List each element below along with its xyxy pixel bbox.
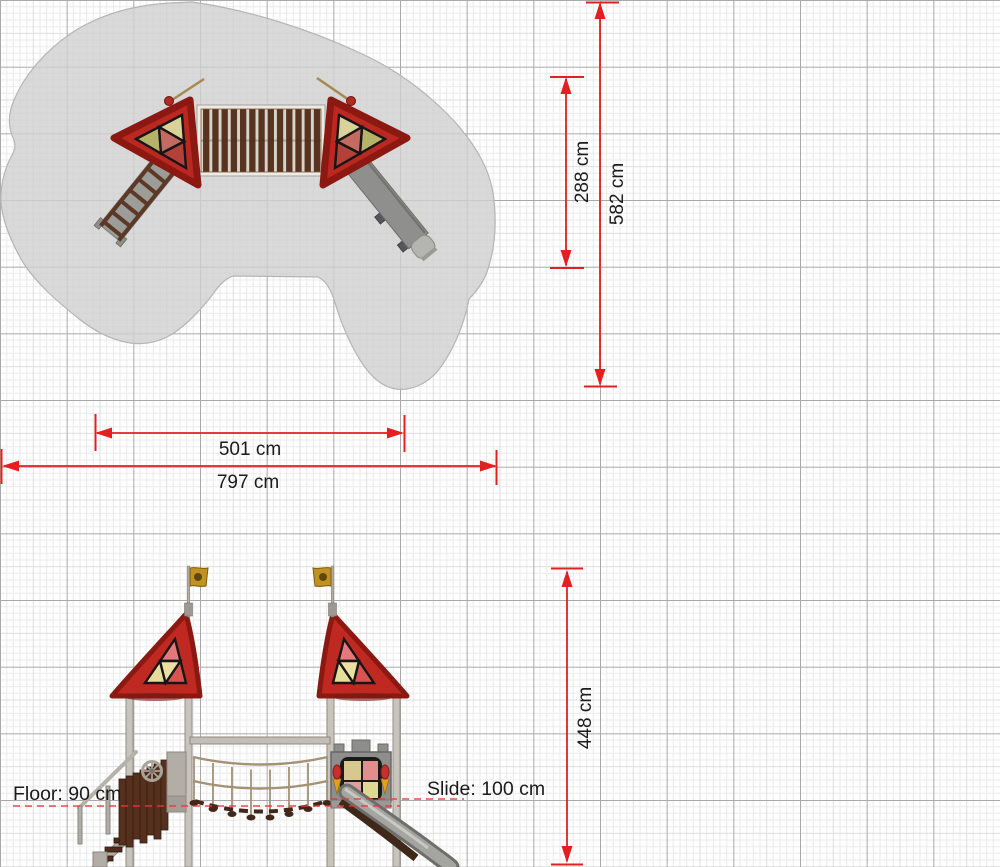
plan-bridge <box>197 105 325 176</box>
flag-base-icon <box>165 97 174 106</box>
top-rail <box>190 737 330 744</box>
playground-technical-drawing: 288 cm 582 cm 501 cm 797 cm 448 cm Floor… <box>0 0 1000 867</box>
dimension-label-797: 797 cm <box>217 472 279 493</box>
wheel-icon <box>143 762 162 781</box>
drawing-canvas: 288 cm 582 cm 501 cm 797 cm 448 cm Floor… <box>0 0 1000 867</box>
slide-height-label: Slide: 100 cm <box>427 778 545 800</box>
dimension-label-448: 448 cm <box>575 687 596 749</box>
dimension-label-501: 501 cm <box>219 439 281 460</box>
stair-foot-block <box>93 852 107 867</box>
stair-stone-base <box>167 796 186 812</box>
dimension-label-288: 288 cm <box>572 141 593 203</box>
flag-base-icon <box>347 97 356 106</box>
floor-height-label: Floor: 90 cm <box>13 783 121 805</box>
dimension-label-582: 582 cm <box>607 163 628 225</box>
